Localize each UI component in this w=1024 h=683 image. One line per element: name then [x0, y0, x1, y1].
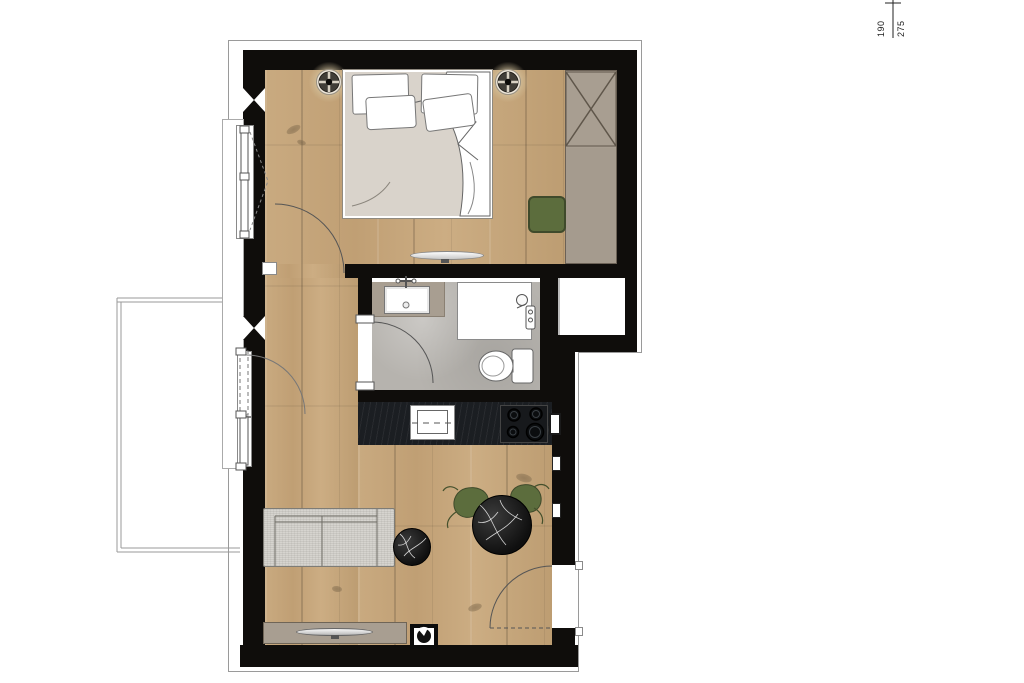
- dining-table: [472, 495, 532, 555]
- wall-bathroom-bottom: [358, 390, 558, 402]
- wall-shaft-bottom: [552, 335, 637, 352]
- coffee-table: [393, 528, 431, 566]
- bedroom-tv: [410, 251, 484, 260]
- wardrobe-lower-section: [566, 148, 616, 263]
- wall-break-marker: [243, 88, 265, 112]
- bathroom-sink: [385, 287, 429, 313]
- wall-niche: [552, 456, 561, 471]
- entrance-sill-bottom: [575, 627, 583, 636]
- dimension-label-b: 275: [896, 5, 906, 37]
- wall-bathroom-top: [345, 264, 637, 278]
- pillow-front-right: [422, 93, 476, 133]
- ottoman: [528, 196, 566, 233]
- dimension-label-a: 190: [876, 5, 886, 37]
- shaft-void: [558, 278, 625, 335]
- shower: [457, 282, 532, 340]
- wall-top: [243, 50, 637, 70]
- floor-plan: 190 275: [0, 0, 1024, 683]
- entrance-door-opening: [552, 565, 575, 628]
- floor-outlet: [410, 624, 438, 649]
- wall-bottom: [240, 645, 578, 667]
- bedroom-window: [236, 125, 254, 239]
- living-tv: [296, 628, 373, 636]
- bedroom-door-jamb: [262, 262, 277, 275]
- bathroom-door-opening: [358, 322, 372, 383]
- living-fixed-window: [237, 417, 252, 467]
- kitchen-sink-basin: [417, 410, 448, 434]
- entrance-sill-top: [575, 561, 583, 570]
- balcony-door-window: [237, 351, 252, 417]
- wall-niche: [552, 503, 561, 518]
- bedroom-doorway-floor: [265, 264, 345, 278]
- hall-floor: [265, 278, 358, 645]
- ceiling-light-right: [488, 62, 528, 102]
- sofa: [263, 508, 395, 567]
- wall-break-marker: [243, 316, 265, 340]
- pillow-front-left: [365, 95, 417, 131]
- cooktop: [500, 405, 548, 443]
- kitchen-wall-niche: [549, 413, 561, 435]
